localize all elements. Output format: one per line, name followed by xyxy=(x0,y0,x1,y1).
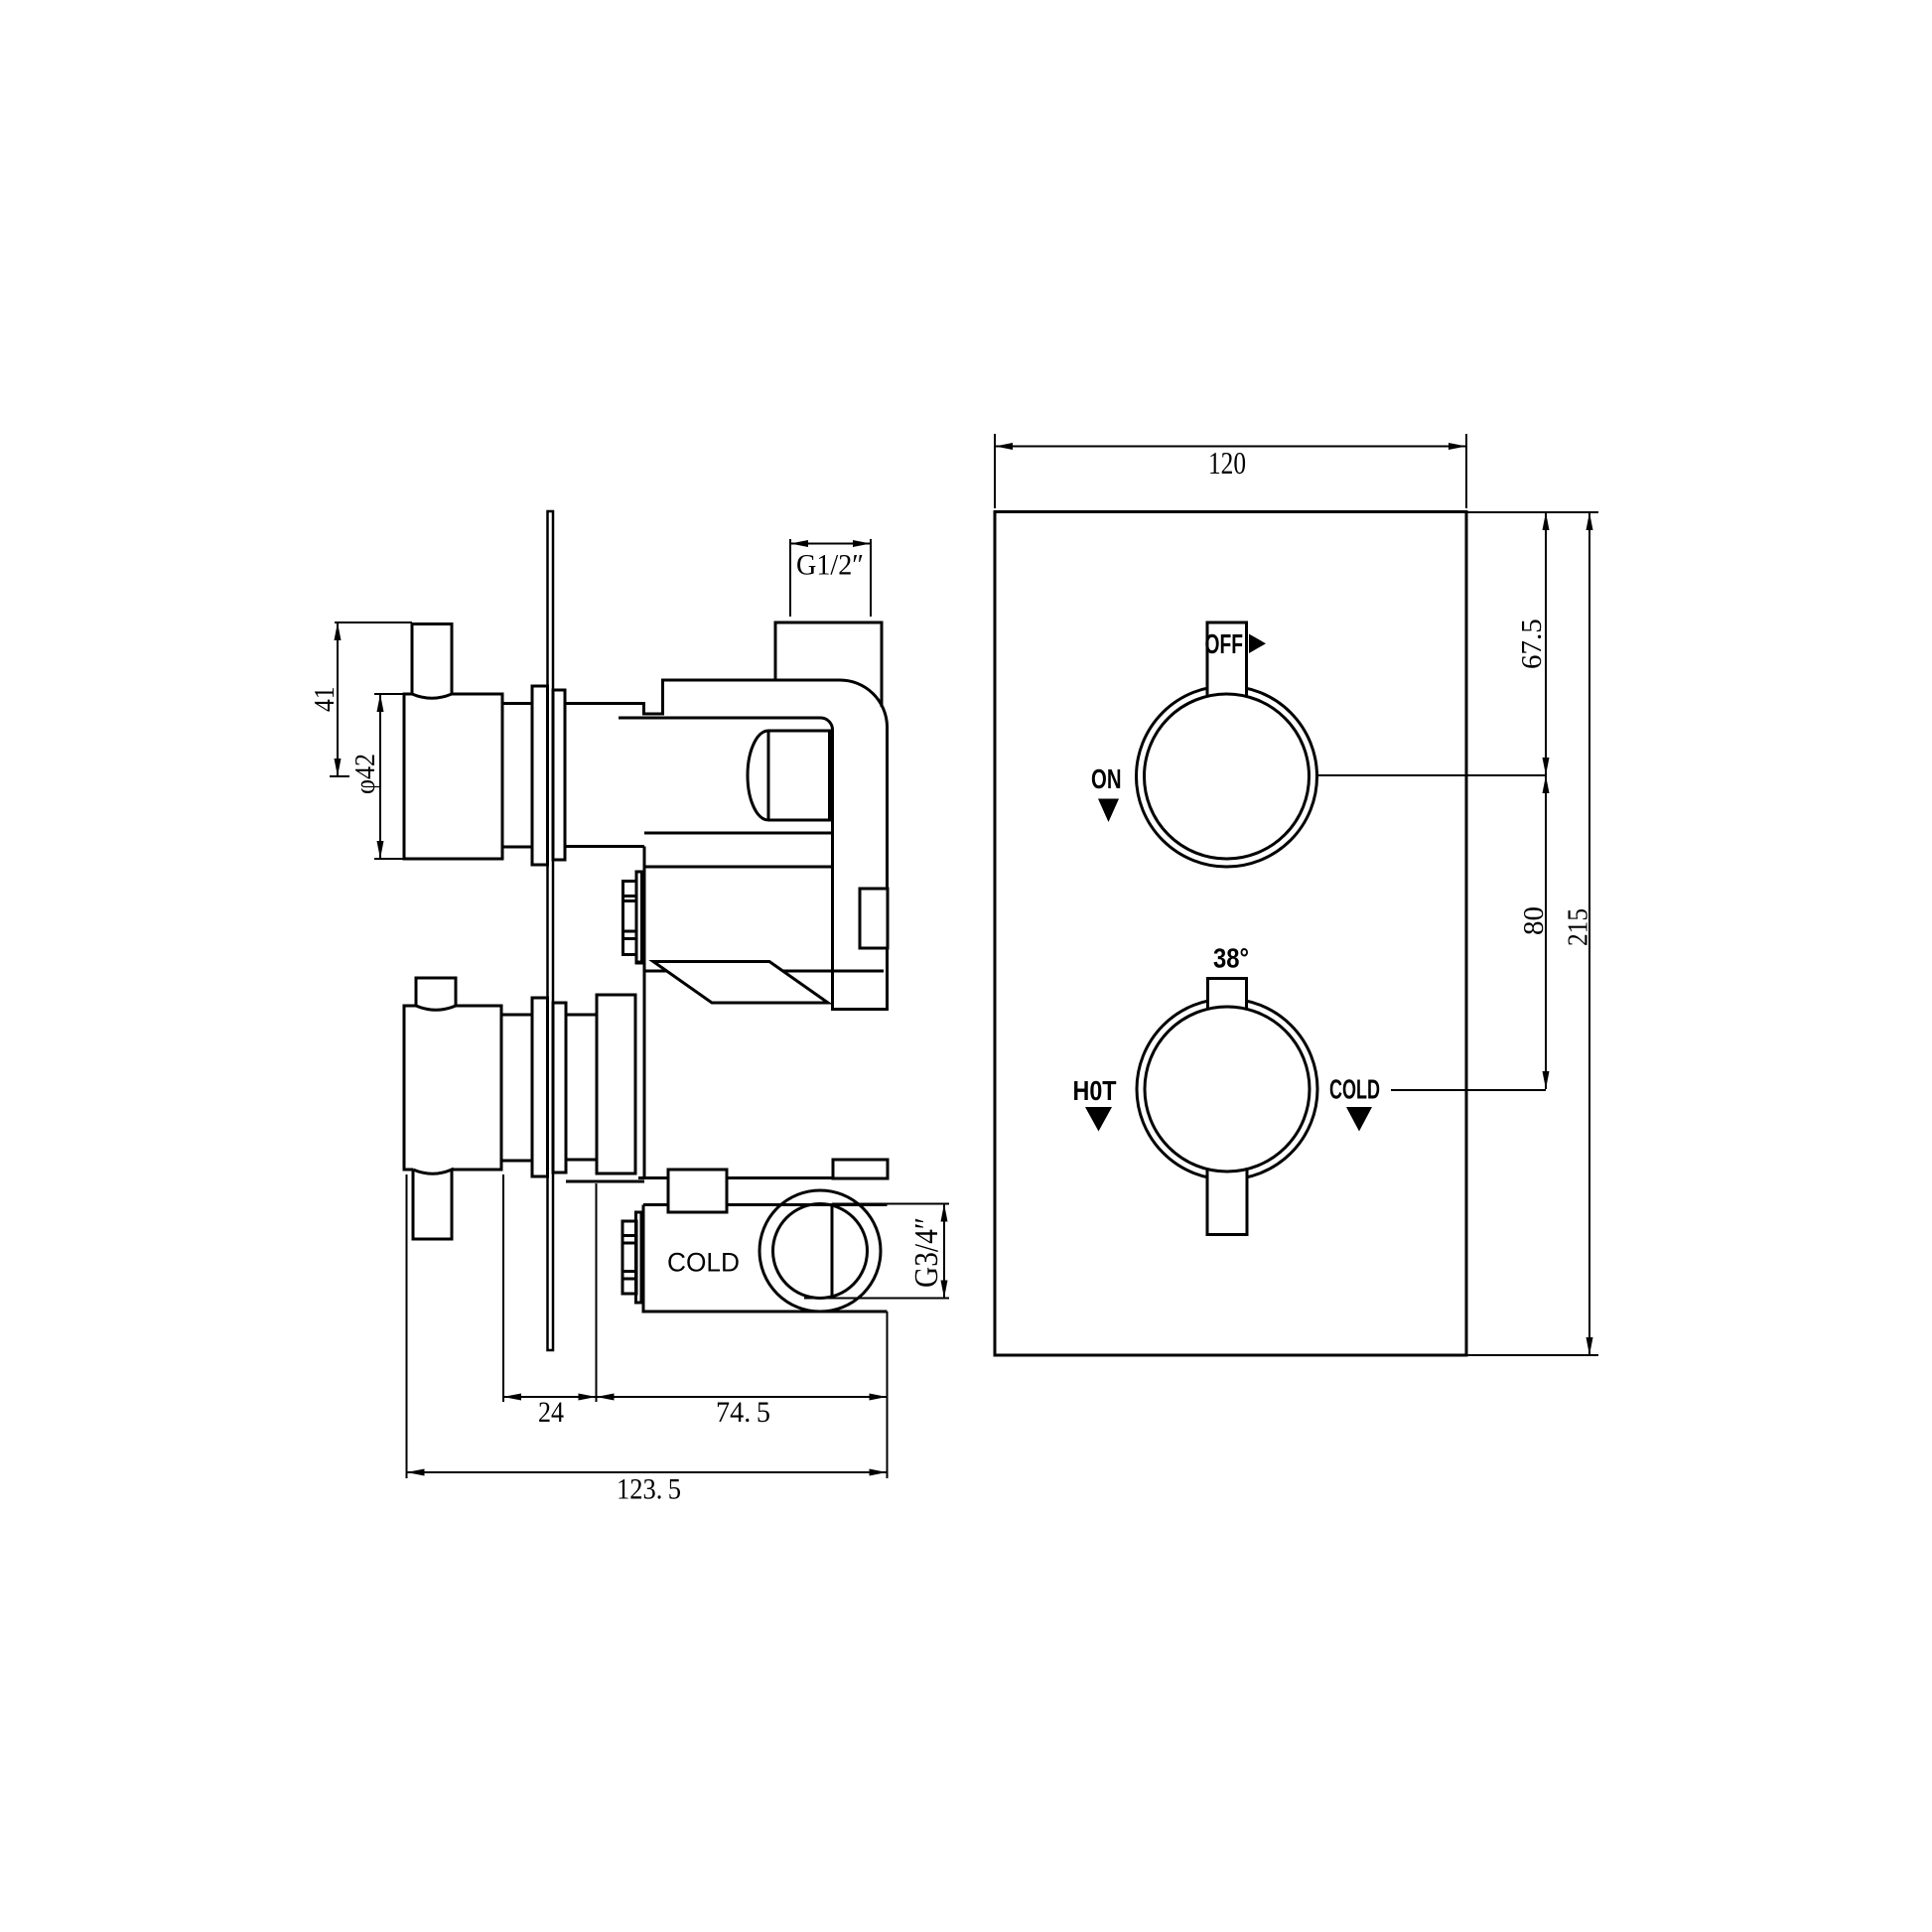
svg-text:123. 5: 123. 5 xyxy=(617,1473,681,1506)
svg-text:24: 24 xyxy=(538,1396,564,1429)
svg-text:80: 80 xyxy=(1518,906,1550,935)
svg-text:COLD: COLD xyxy=(667,1248,740,1278)
svg-text:COLD: COLD xyxy=(1329,1074,1380,1105)
svg-text:215: 215 xyxy=(1563,908,1594,946)
svg-text:ON: ON xyxy=(1091,763,1122,794)
svg-text:67.5: 67.5 xyxy=(1516,619,1548,669)
svg-text:74. 5: 74. 5 xyxy=(716,1396,770,1429)
svg-text:H0T: H0T xyxy=(1073,1075,1117,1106)
svg-text:38°: 38° xyxy=(1213,943,1249,974)
svg-text:φ42: φ42 xyxy=(349,754,381,794)
svg-text:120: 120 xyxy=(1208,445,1246,481)
svg-text:41: 41 xyxy=(309,687,341,713)
svg-text:G3/4″: G3/4″ xyxy=(908,1217,945,1288)
svg-text:OFF: OFF xyxy=(1205,628,1244,659)
svg-text:G1/2″: G1/2″ xyxy=(796,549,864,582)
